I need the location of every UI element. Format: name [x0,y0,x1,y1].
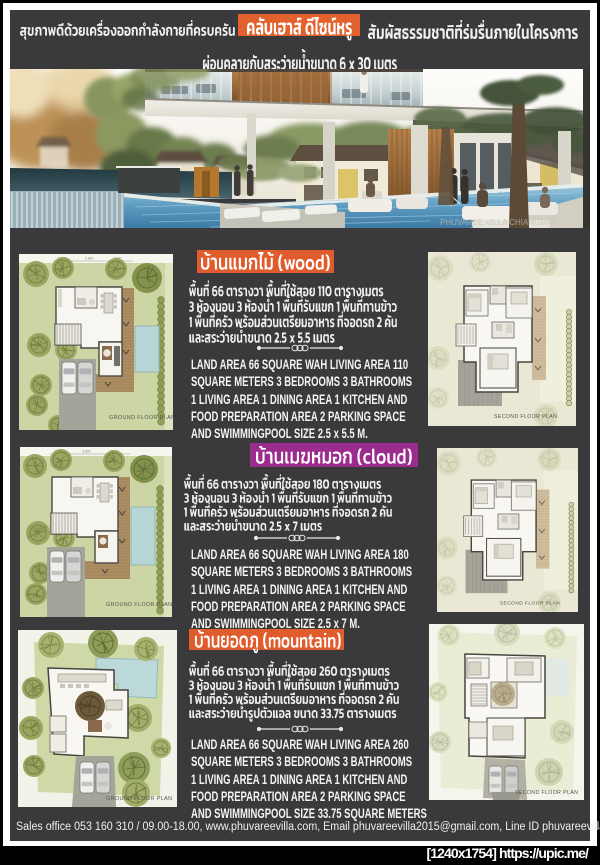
svg-text:3.800: 3.800 [82,450,91,454]
svg-text:3.800: 3.800 [85,257,94,261]
svg-text:PHUVAREE VILLA CHIANGMAI: PHUVAREE VILLA CHIANGMAI [440,218,555,227]
svg-text:GROUND FLOOR PLAN: GROUND FLOOR PLAN [109,415,173,421]
svg-text:GROUND FLOOR PLAN: GROUND FLOOR PLAN [106,602,172,608]
svg-text:SECOND FLOOR PLAN: SECOND FLOOR PLAN [515,790,578,796]
svg-text:GROUND FLOOR PLAN: GROUND FLOOR PLAN [106,796,172,802]
svg-text:SECOND FLOOR PLAN: SECOND FLOOR PLAN [500,600,560,606]
svg-text:SECOND FLOOR PLAN: SECOND FLOOR PLAN [494,414,557,420]
